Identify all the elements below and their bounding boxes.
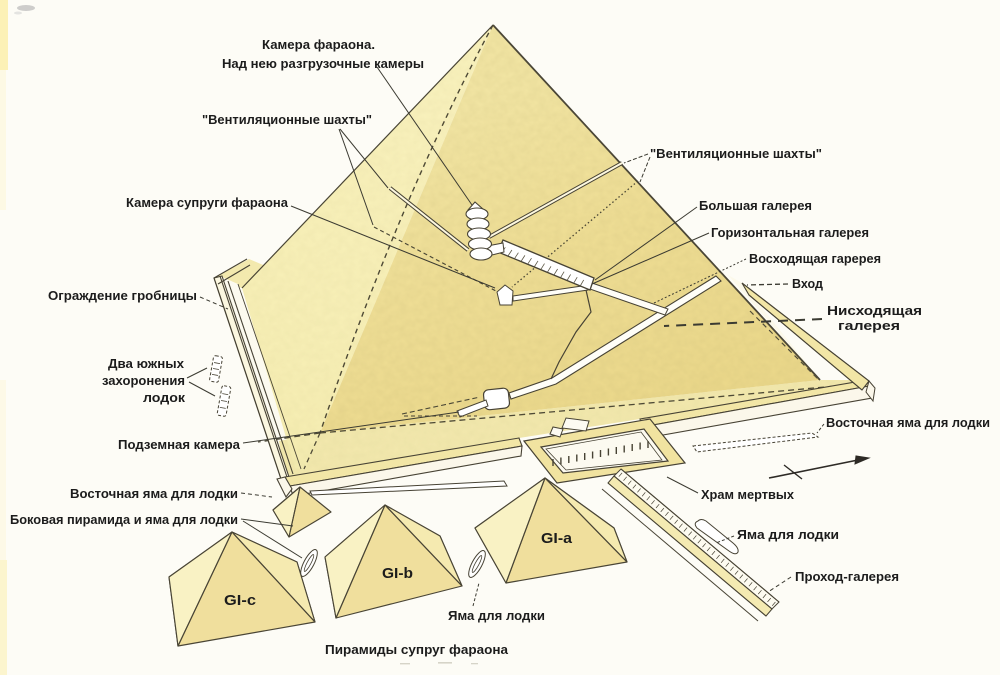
svg-text:Подземная камера: Подземная камера bbox=[118, 437, 241, 452]
svg-text:Восточная яма для лодки: Восточная яма для лодки bbox=[826, 415, 990, 430]
svg-text:Ограждение гробницы: Ограждение гробницы bbox=[48, 288, 197, 303]
svg-text:GI-b: GI-b bbox=[382, 565, 413, 582]
svg-text:Камера супруги фараона: Камера супруги фараона bbox=[126, 195, 289, 210]
svg-text:GI-a: GI-a bbox=[541, 530, 573, 547]
svg-text:"Вентиляционные шахты": "Вентиляционные шахты" bbox=[202, 112, 372, 127]
svg-text:Нисходящая: Нисходящая bbox=[827, 303, 922, 318]
svg-text:Горизонтальная галерея: Горизонтальная галерея bbox=[711, 225, 869, 240]
svg-text:Вход: Вход bbox=[792, 276, 824, 291]
svg-text:Восточная яма для лодки: Восточная яма для лодки bbox=[70, 486, 238, 501]
svg-text:галерея: галерея bbox=[838, 318, 900, 333]
svg-text:Храм мертвых: Храм мертвых bbox=[701, 487, 795, 502]
svg-text:"Вентиляционные шахты": "Вентиляционные шахты" bbox=[650, 146, 822, 161]
svg-text:захоронения: захоронения bbox=[102, 373, 185, 388]
svg-text:GI-c: GI-c bbox=[224, 592, 256, 609]
svg-text:Два южных: Два южных bbox=[108, 356, 185, 371]
svg-text:лодок: лодок bbox=[143, 390, 186, 405]
svg-text:Проход-галерея: Проход-галерея bbox=[795, 569, 899, 584]
svg-text:Камера фараона.: Камера фараона. bbox=[262, 37, 375, 52]
svg-text:Восходящая гаререя: Восходящая гаререя bbox=[749, 251, 881, 266]
svg-text:Яма для лодки: Яма для лодки bbox=[448, 608, 545, 623]
svg-text:Большая галерея: Большая галерея bbox=[699, 198, 812, 213]
svg-text:Яма для лодки: Яма для лодки bbox=[737, 527, 839, 542]
svg-text:Боковая пирамида и яма для лод: Боковая пирамида и яма для лодки bbox=[10, 512, 238, 527]
svg-text:Пирамиды супруг фараона: Пирамиды супруг фараона bbox=[325, 642, 509, 657]
svg-text:Над нею разгрузочные камеры: Над нею разгрузочные камеры bbox=[222, 56, 424, 71]
